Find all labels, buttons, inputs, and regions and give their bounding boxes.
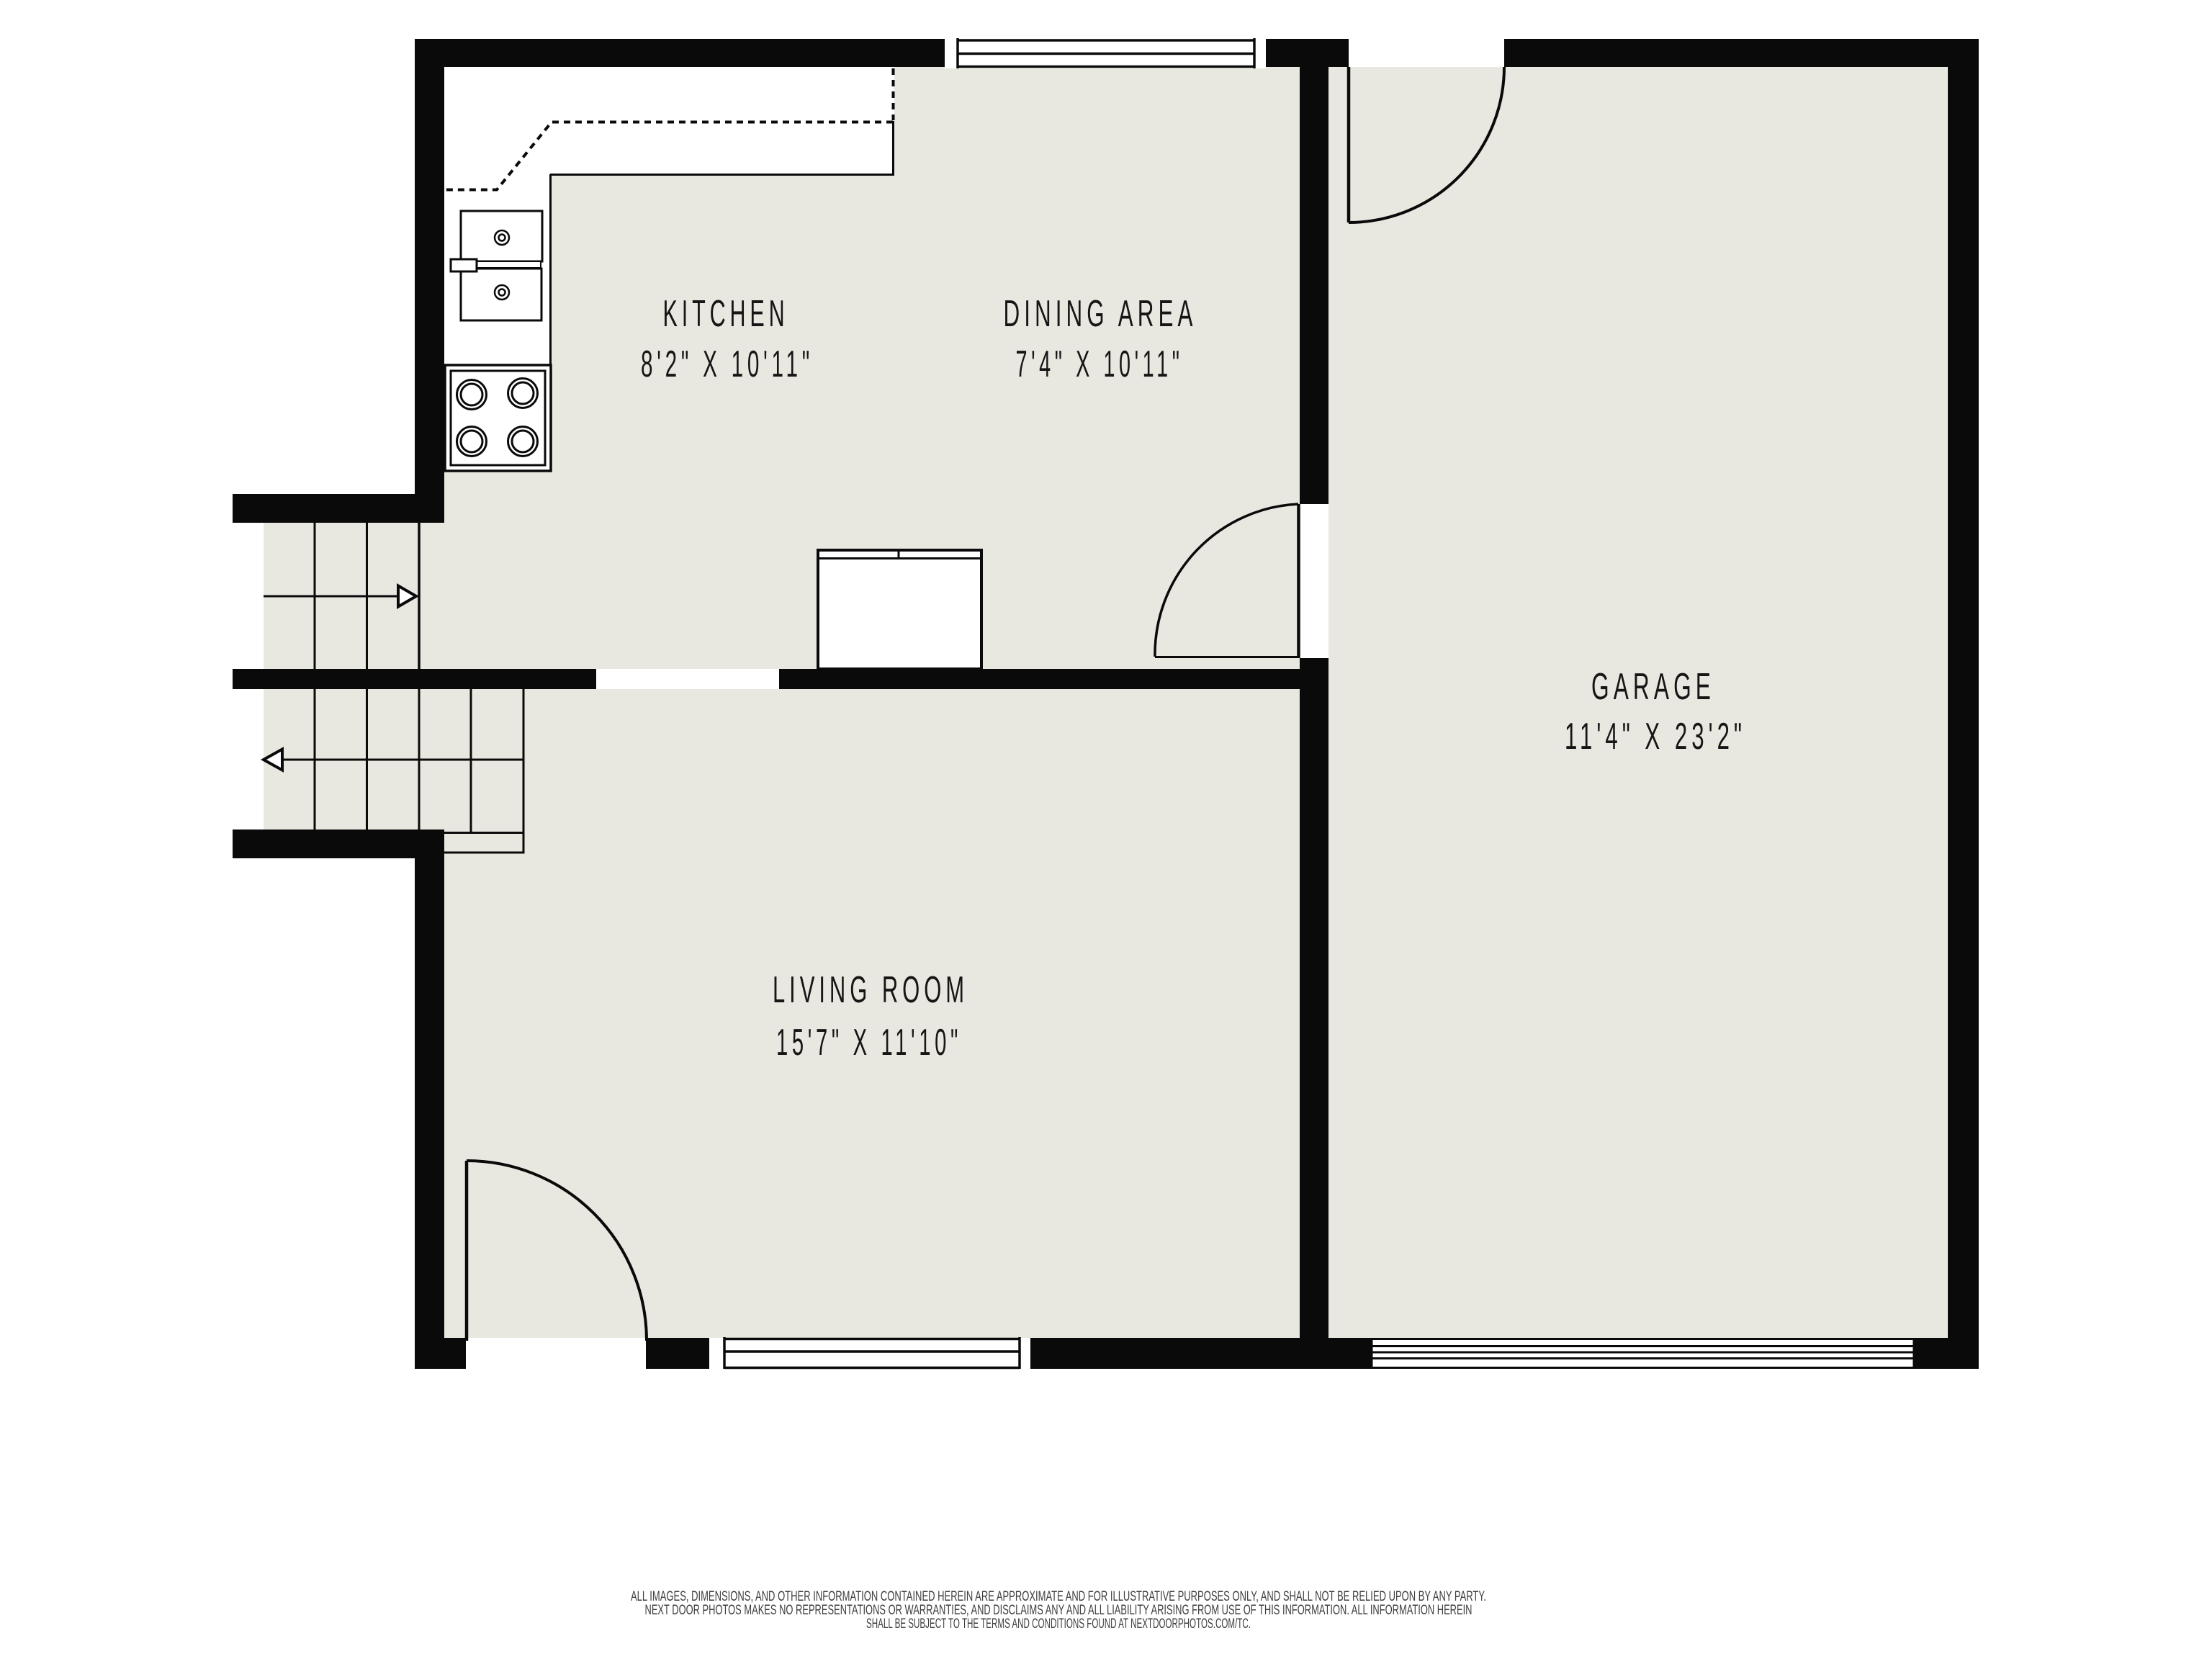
svg-text:ALL IMAGES, DIMENSIONS, AND OT: ALL IMAGES, DIMENSIONS, AND OTHER INFORM… bbox=[631, 1589, 1486, 1604]
svg-text:8'2" X 10'11": 8'2" X 10'11" bbox=[641, 343, 814, 385]
svg-text:11'4" X 23'2": 11'4" X 23'2" bbox=[1565, 716, 1746, 757]
svg-text:7'4" X 10'11": 7'4" X 10'11" bbox=[1016, 343, 1184, 385]
svg-text:GARAGE: GARAGE bbox=[1591, 666, 1715, 708]
svg-text:KITCHEN: KITCHEN bbox=[663, 293, 789, 335]
svg-text:15'7" X 11'10": 15'7" X 11'10" bbox=[776, 1022, 962, 1064]
svg-text:LIVING ROOM: LIVING ROOM bbox=[773, 969, 968, 1011]
svg-text:NEXT DOOR PHOTOS MAKES NO REPR: NEXT DOOR PHOTOS MAKES NO REPRESENTATION… bbox=[645, 1603, 1473, 1618]
svg-text:SHALL BE SUBJECT TO THE TERMS: SHALL BE SUBJECT TO THE TERMS AND CONDIT… bbox=[866, 1617, 1251, 1632]
svg-text:DINING AREA: DINING AREA bbox=[1004, 293, 1197, 335]
